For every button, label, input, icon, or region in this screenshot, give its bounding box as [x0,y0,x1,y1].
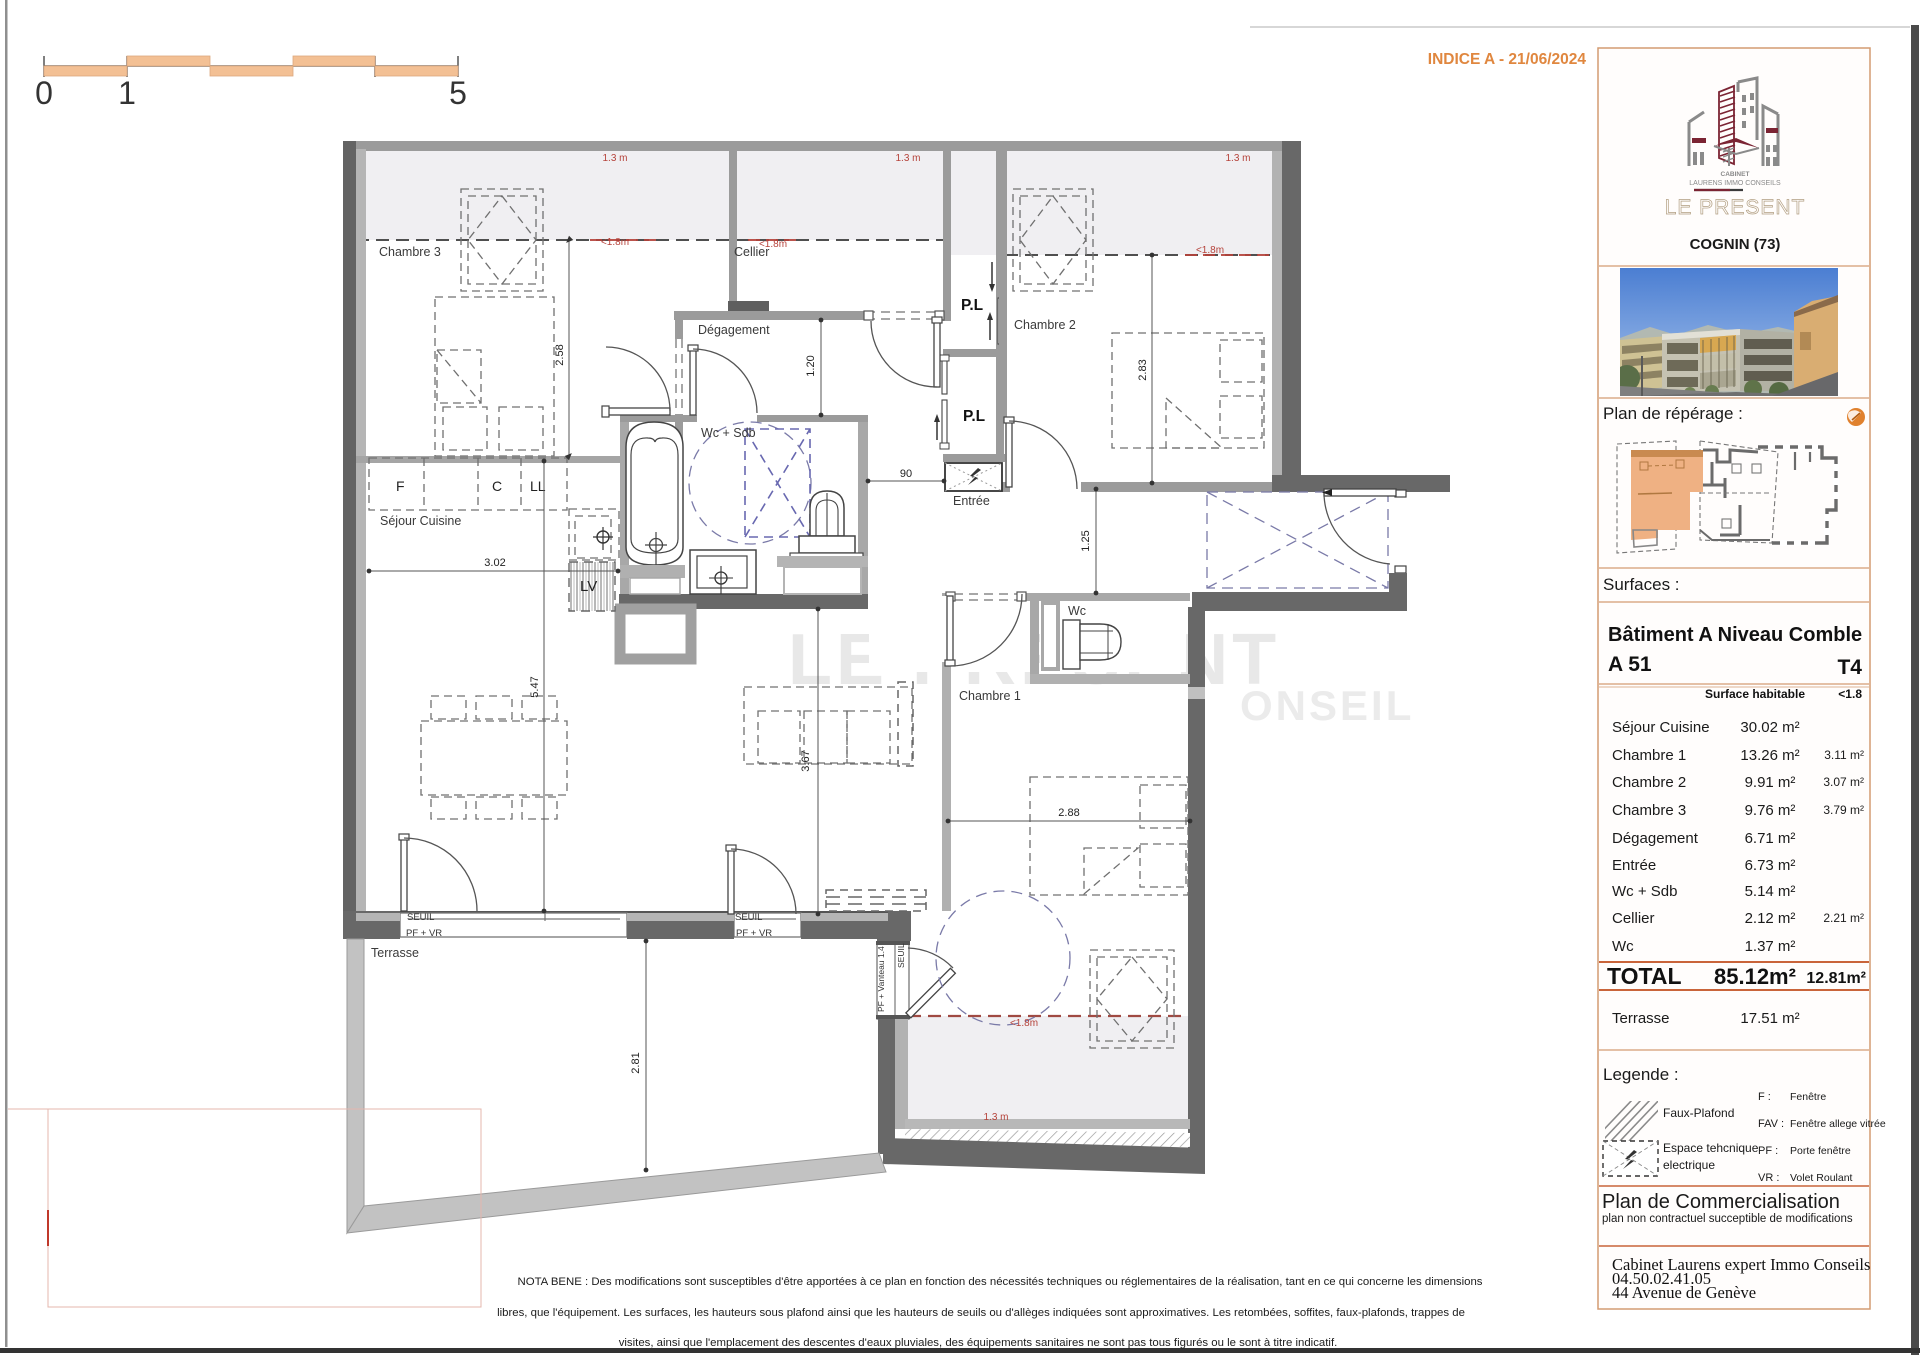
svg-text:FAV :: FAV : [1758,1118,1784,1130]
svg-text:Chambre 3: Chambre 3 [379,245,441,259]
svg-text:2.81: 2.81 [630,1052,642,1073]
svg-text:1: 1 [118,75,136,111]
svg-text:PF + VR: PF + VR [406,928,442,939]
svg-text:Chambre 3: Chambre 3 [1612,802,1686,819]
svg-text:2.83: 2.83 [1137,359,1149,380]
svg-text:P.L: P.L [963,408,985,425]
svg-text:Plan de répérage :: Plan de répérage : [1603,404,1743,423]
svg-text:6.71 m²: 6.71 m² [1745,830,1796,847]
svg-text:1.3 m: 1.3 m [602,153,627,164]
svg-text:Wc: Wc [1068,604,1086,618]
svg-text:Séjour Cuisine: Séjour Cuisine [1612,719,1710,736]
svg-text:COGNIN (73): COGNIN (73) [1690,236,1781,253]
svg-text:PF :: PF : [1758,1145,1778,1157]
svg-text:F :: F : [1758,1091,1771,1103]
svg-text:3.02: 3.02 [484,557,505,569]
svg-text:1.3 m: 1.3 m [895,153,920,164]
svg-text:3.11 m²: 3.11 m² [1824,748,1864,762]
svg-text:Chambre 2: Chambre 2 [1014,318,1076,332]
svg-text:5: 5 [449,75,467,111]
svg-text:Surface habitable: Surface habitable [1705,687,1805,701]
svg-text:SEUIL: SEUIL [896,943,906,968]
svg-text:Wc + Sdb: Wc + Sdb [701,426,756,440]
svg-text:SEUIL: SEUIL [407,912,434,923]
svg-text:1.37 m²: 1.37 m² [1745,938,1796,955]
svg-text:<1.8m: <1.8m [1196,245,1224,256]
svg-text:LL: LL [530,478,546,494]
svg-text:Chambre 2: Chambre 2 [1612,774,1686,791]
svg-text:3.79 m²: 3.79 m² [1823,803,1864,817]
svg-text:Entrée: Entrée [1612,857,1656,874]
svg-text:PF + Vanteau 1.4: PF + Vanteau 1.4 [876,946,886,1012]
svg-text:5.47: 5.47 [529,676,541,697]
svg-text:Surfaces :: Surfaces : [1603,575,1680,594]
svg-text:Chambre 1: Chambre 1 [959,689,1021,703]
svg-text:VR :: VR : [1758,1172,1779,1184]
svg-text:libres, que l'équipement. Les: libres, que l'équipement. Les surfaces, … [497,1307,1465,1319]
svg-text:plan non contractuel succeptib: plan non contractuel succeptible de modi… [1602,1213,1853,1225]
svg-text:Wc: Wc [1612,938,1634,955]
svg-text:17.51 m²: 17.51 m² [1740,1010,1799,1027]
svg-text:Plan de Commercialisation: Plan de Commercialisation [1602,1191,1840,1213]
svg-text:TOTAL: TOTAL [1607,963,1682,989]
svg-text:Porte fenêtre: Porte fenêtre [1790,1145,1851,1157]
svg-text:Fenêtre allege vitrée: Fenêtre allege vitrée [1790,1118,1886,1130]
svg-text:90: 90 [900,468,912,480]
svg-text:Cellier: Cellier [1612,910,1655,927]
svg-text:CABINET: CABINET [1721,171,1750,178]
svg-text:3.07 m²: 3.07 m² [1823,775,1864,789]
svg-text:F: F [396,478,405,494]
svg-text:Dégagement: Dégagement [1612,830,1699,847]
svg-text:Volet Roulant: Volet Roulant [1790,1172,1853,1184]
svg-text:Chambre 1: Chambre 1 [1612,747,1686,764]
svg-text:13.26 m²: 13.26 m² [1740,747,1799,764]
svg-text:3.67: 3.67 [800,750,812,771]
svg-text:visites, ainsi que l'emplaceme: visites, ainsi que l'emplacement des des… [619,1337,1338,1349]
svg-text:LE PRESENT: LE PRESENT [1665,196,1806,219]
svg-text:Wc + Sdb: Wc + Sdb [1612,883,1677,900]
svg-text:9.76 m²: 9.76 m² [1745,802,1796,819]
svg-text:Entrée: Entrée [953,494,990,508]
svg-text:Espace tehcnique: Espace tehcnique [1663,1141,1759,1155]
svg-text:85.12m²: 85.12m² [1714,964,1796,989]
svg-text:2.12 m²: 2.12 m² [1745,910,1796,927]
svg-text:LAURENS IMMO CONSEILS: LAURENS IMMO CONSEILS [1689,180,1781,187]
svg-text:Legende :: Legende : [1603,1065,1679,1084]
svg-text:5.14 m²: 5.14 m² [1745,883,1796,900]
svg-text:9.91 m²: 9.91 m² [1745,774,1796,791]
svg-text:6.73 m²: 6.73 m² [1745,857,1796,874]
svg-text:electrique: electrique [1663,1158,1715,1172]
svg-text:ONSEIL: ONSEIL [1240,682,1414,729]
svg-text:SEUIL: SEUIL [735,912,762,923]
svg-text:INDICE A - 21/06/2024: INDICE A - 21/06/2024 [1428,51,1587,68]
svg-text:<1.8: <1.8 [1838,687,1862,701]
svg-text:Bâtiment A Niveau Comble: Bâtiment A Niveau Comble [1608,624,1862,646]
svg-text:NOTA BENE : Des modifications: NOTA BENE : Des modifications sont susce… [517,1276,1482,1288]
svg-text:Terrasse: Terrasse [371,946,419,960]
svg-text:Séjour Cuisine: Séjour Cuisine [380,514,461,528]
svg-text:Terrasse: Terrasse [1612,1010,1670,1027]
svg-text:2.88: 2.88 [1058,807,1079,819]
svg-text:1.3 m: 1.3 m [1225,153,1250,164]
svg-text:2.58: 2.58 [554,344,566,365]
svg-text:<1.8m: <1.8m [601,237,629,248]
svg-text:T4: T4 [1837,656,1862,679]
svg-text:44 Avenue de Genève: 44 Avenue de Genève [1612,1283,1756,1302]
svg-text:2.21 m²: 2.21 m² [1823,911,1864,925]
svg-text:LV: LV [580,578,597,595]
svg-text:30.02 m²: 30.02 m² [1740,719,1799,736]
svg-text:1.25: 1.25 [1080,530,1092,551]
svg-text:Cellier: Cellier [734,245,769,259]
svg-text:PF + VR: PF + VR [736,928,772,939]
svg-text:Faux-Plafond: Faux-Plafond [1663,1106,1734,1120]
svg-text:Fenêtre: Fenêtre [1790,1091,1826,1103]
svg-text:C: C [492,478,502,494]
svg-text:A 51: A 51 [1608,653,1652,676]
svg-text:<1.8m: <1.8m [1010,1018,1038,1029]
svg-text:1.3 m: 1.3 m [983,1112,1008,1123]
svg-text:12.81m²: 12.81m² [1806,970,1866,987]
svg-text:0: 0 [35,75,53,111]
svg-text:P.L: P.L [961,297,983,314]
svg-text:1.20: 1.20 [805,355,817,376]
svg-text:Dégagement: Dégagement [698,323,770,337]
